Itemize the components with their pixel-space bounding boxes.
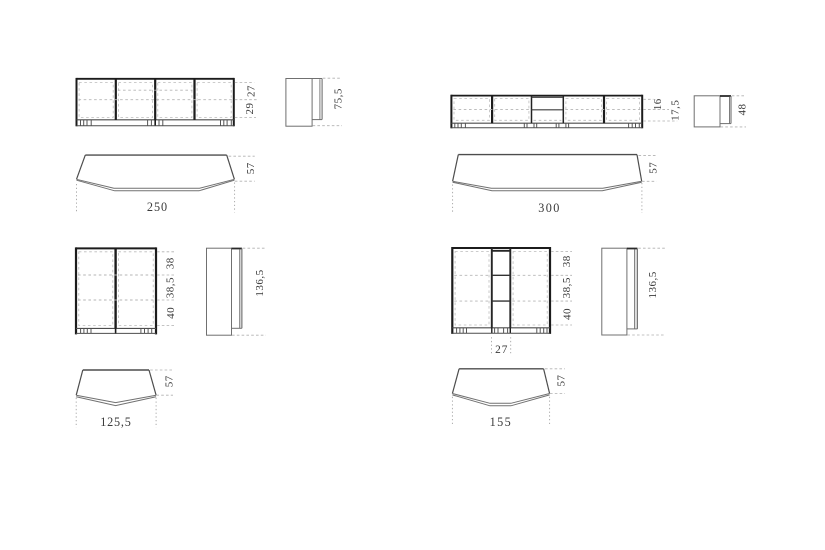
svg-text:27: 27 [245, 85, 257, 97]
svg-text:16: 16 [652, 98, 664, 110]
svg-text:17,5: 17,5 [669, 100, 681, 121]
svg-text:155: 155 [490, 415, 512, 429]
svg-text:38: 38 [165, 257, 177, 269]
svg-text:38: 38 [561, 255, 573, 267]
svg-text:38,5: 38,5 [165, 277, 177, 298]
svg-text:136,5: 136,5 [647, 271, 659, 298]
svg-text:40: 40 [561, 308, 573, 320]
svg-text:29: 29 [244, 103, 256, 115]
svg-text:38,5: 38,5 [561, 277, 573, 298]
svg-text:300: 300 [538, 201, 560, 215]
svg-text:75,5: 75,5 [332, 88, 344, 109]
svg-text:136,5: 136,5 [254, 269, 266, 296]
svg-text:57: 57 [648, 162, 660, 174]
svg-text:27: 27 [495, 344, 508, 356]
svg-text:57: 57 [556, 375, 568, 387]
svg-text:40: 40 [165, 307, 177, 319]
svg-text:250: 250 [147, 200, 168, 214]
svg-text:48: 48 [736, 104, 748, 116]
svg-text:57: 57 [163, 375, 175, 387]
svg-text:57: 57 [245, 162, 257, 174]
svg-text:125,5: 125,5 [100, 415, 131, 429]
